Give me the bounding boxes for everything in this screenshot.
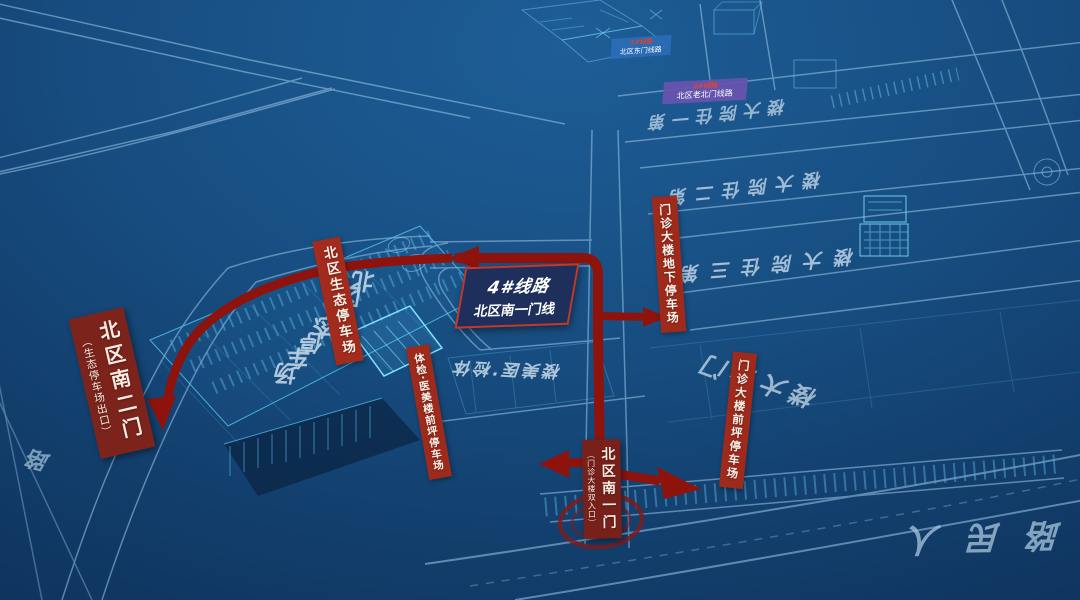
label-south1-gate: （门诊大楼双入口） 北区南一门 bbox=[582, 439, 622, 539]
south1-gate-title: 北区南一门 bbox=[597, 446, 618, 531]
route-card: 4#线路 北区南一门线 bbox=[455, 263, 580, 328]
route-branch-underground bbox=[600, 316, 645, 317]
hospital-route-map: 第一住院大楼 第二住院大楼 第三住院大楼 门诊大楼 体检·医美楼 北区生态停车场… bbox=[0, 0, 1080, 600]
route-card-number: 4#线路 bbox=[464, 270, 574, 299]
arrow-right-gate-icon bbox=[657, 467, 701, 499]
arrow-exit-south2-icon bbox=[147, 396, 176, 430]
mini-card-east-route: 3#线路 北区东门线路 bbox=[610, 35, 671, 60]
route-west-loop bbox=[166, 258, 452, 407]
mini-card-north-route: 2#线路 北区老北门线路 bbox=[662, 78, 748, 105]
south1-gate-subtitle: （门诊大楼双入口） bbox=[585, 451, 597, 528]
route-card-name: 北区南一门线 bbox=[460, 297, 569, 321]
arrow-left-gate-icon bbox=[539, 450, 569, 478]
